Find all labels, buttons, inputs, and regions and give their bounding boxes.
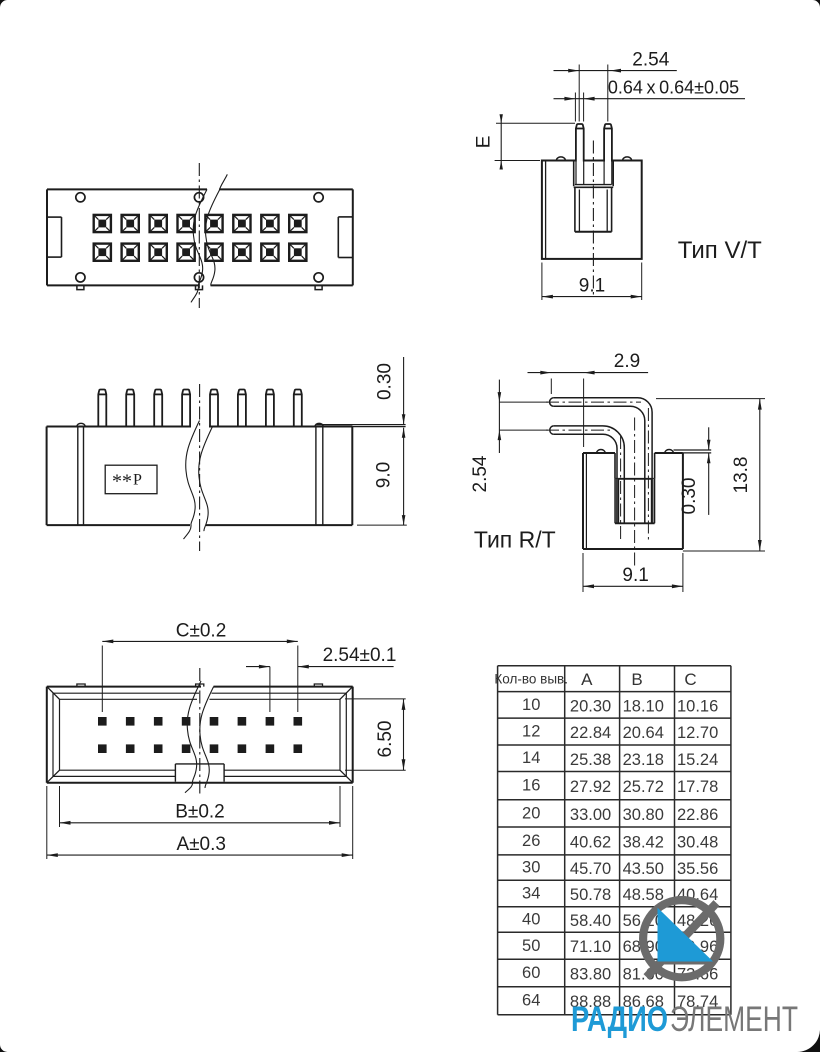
svg-text:30.48: 30.48 (677, 834, 718, 852)
svg-text:48.58: 48.58 (623, 886, 664, 904)
svg-text:50: 50 (522, 937, 540, 955)
svg-text:C±0.2: C±0.2 (176, 621, 227, 642)
svg-text:40.62: 40.62 (570, 834, 611, 852)
svg-text:23.18: 23.18 (623, 751, 664, 769)
svg-text:83.80: 83.80 (570, 966, 611, 984)
svg-text:Кол-во выв.: Кол-во выв. (494, 672, 568, 687)
svg-text:0.30: 0.30 (375, 363, 396, 400)
svg-text:13.8: 13.8 (731, 457, 752, 494)
svg-text:20.30: 20.30 (570, 697, 611, 715)
svg-text:16: 16 (522, 777, 540, 795)
svg-text:2.54±0.1: 2.54±0.1 (323, 645, 397, 666)
svg-text:40: 40 (522, 911, 540, 929)
svg-text:6.50: 6.50 (375, 721, 396, 758)
svg-text:РАДИО: РАДИО (571, 1000, 668, 1039)
svg-text:22.86: 22.86 (677, 806, 718, 824)
svg-text:22.84: 22.84 (570, 724, 611, 742)
svg-text:A±0.3: A±0.3 (176, 834, 226, 855)
svg-text:26: 26 (522, 832, 540, 850)
svg-text:A: A (581, 670, 593, 689)
svg-text:2.54: 2.54 (632, 49, 669, 70)
svg-text:C: C (684, 670, 696, 689)
svg-text:25.72: 25.72 (623, 778, 664, 796)
svg-text:E: E (474, 136, 495, 149)
svg-text:2.9: 2.9 (614, 351, 640, 372)
svg-text:2.54: 2.54 (470, 455, 491, 492)
svg-text:50.78: 50.78 (570, 886, 611, 904)
svg-text:20: 20 (522, 804, 540, 822)
svg-text:9.1: 9.1 (622, 565, 648, 586)
svg-text:25.38: 25.38 (570, 751, 611, 769)
svg-text:18.10: 18.10 (623, 697, 664, 715)
svg-text:60: 60 (522, 964, 540, 982)
svg-text:64: 64 (522, 992, 540, 1010)
svg-text:27.92: 27.92 (570, 778, 611, 796)
svg-text:43.50: 43.50 (623, 860, 664, 878)
svg-text:10.16: 10.16 (677, 697, 718, 715)
svg-text:14: 14 (522, 749, 540, 767)
svg-text:9.0: 9.0 (373, 462, 394, 488)
svg-text:30: 30 (522, 859, 540, 877)
svg-text:0.30: 0.30 (679, 478, 700, 515)
svg-text:35.56: 35.56 (677, 860, 718, 878)
svg-text:71.10: 71.10 (570, 938, 611, 956)
svg-text:20.64: 20.64 (623, 724, 664, 742)
svg-text:0.64 x 0.64±0.05: 0.64 x 0.64±0.05 (608, 77, 739, 97)
svg-text:Тип V/T: Тип V/T (678, 237, 762, 264)
svg-text:12: 12 (522, 723, 540, 741)
svg-text:9.1: 9.1 (579, 276, 605, 297)
svg-text:Тип R/T: Тип R/T (474, 527, 556, 553)
svg-text:34: 34 (522, 885, 540, 903)
svg-text:ЭЛЕМЕНТ: ЭЛЕМЕНТ (670, 1000, 798, 1039)
svg-text:B: B (631, 670, 642, 689)
svg-text:45.70: 45.70 (570, 860, 611, 878)
svg-text:B±0.2: B±0.2 (175, 802, 225, 823)
svg-text:38.42: 38.42 (623, 834, 664, 852)
svg-text:P: P (133, 472, 142, 489)
svg-text:12.70: 12.70 (677, 724, 718, 742)
svg-text:10: 10 (522, 696, 540, 714)
svg-text:**: ** (112, 471, 132, 493)
svg-text:17.78: 17.78 (677, 778, 718, 796)
svg-text:30.80: 30.80 (623, 806, 664, 824)
svg-text:15.24: 15.24 (677, 751, 718, 769)
svg-text:33.00: 33.00 (570, 806, 611, 824)
svg-text:58.40: 58.40 (570, 912, 611, 930)
